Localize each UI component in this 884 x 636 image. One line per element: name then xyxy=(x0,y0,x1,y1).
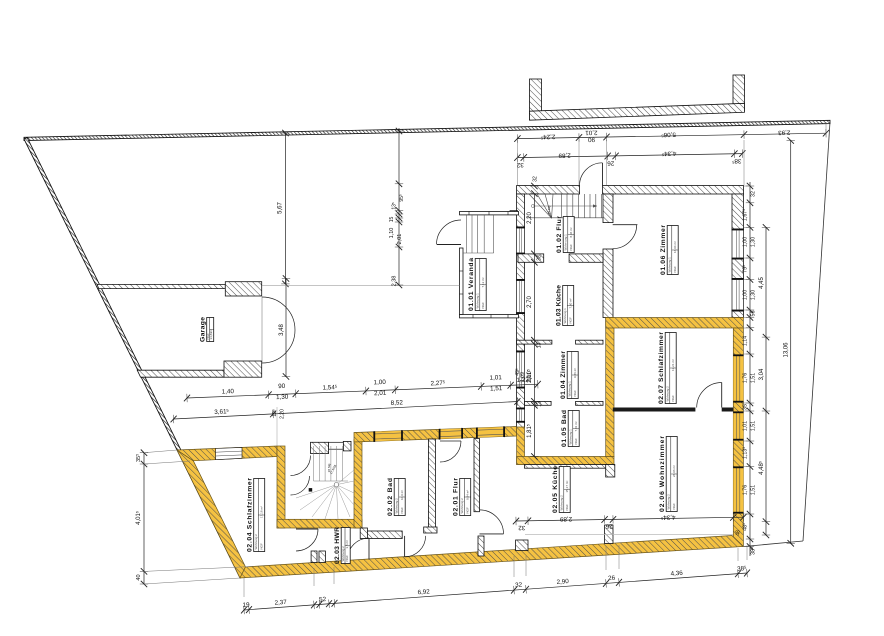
svg-text:26: 26 xyxy=(608,575,616,583)
svg-text:26,96 m²: 26,96 m² xyxy=(672,465,676,477)
svg-text:02.06 Wohnzimmer: 02.06 Wohnzimmer xyxy=(659,436,666,512)
svg-text:1,00: 1,00 xyxy=(743,237,749,247)
svg-text:1,10: 1,10 xyxy=(389,228,395,239)
svg-text:01.02 Flur: 01.02 Flur xyxy=(556,216,563,253)
svg-text:15: 15 xyxy=(389,217,395,223)
svg-text:5,67: 5,67 xyxy=(278,202,284,214)
svg-text:Wohnung 1: Wohnung 1 xyxy=(476,293,480,309)
svg-text:7,13 m²: 7,13 m² xyxy=(481,277,485,287)
svg-text:4,36: 4,36 xyxy=(670,570,683,578)
svg-text:NGF: NGF xyxy=(400,507,404,514)
svg-text:1,00: 1,00 xyxy=(743,290,749,300)
svg-text:NGF: NGF xyxy=(673,266,677,273)
svg-text:7,60 m²: 7,60 m² xyxy=(568,298,572,308)
svg-text:01.04 Zimmer: 01.04 Zimmer xyxy=(560,351,567,399)
svg-text:1,76: 1,76 xyxy=(743,485,749,495)
svg-text:17,18 m²: 17,18 m² xyxy=(259,506,263,518)
svg-text:8,36 m²: 8,36 m² xyxy=(569,227,573,237)
svg-text:1,30: 1,30 xyxy=(751,290,757,300)
svg-text:2,89: 2,89 xyxy=(559,515,572,522)
svg-text:32: 32 xyxy=(751,191,757,197)
svg-text:NGF: NGF xyxy=(259,543,263,550)
svg-text:3,615: 3,615 xyxy=(214,408,229,416)
svg-text:1,51: 1,51 xyxy=(751,421,757,431)
svg-text:1,545: 1,545 xyxy=(322,384,337,392)
svg-text:Wohnung 1: Wohnung 1 xyxy=(568,381,572,397)
svg-text:02.07 Schlafzimmer: 02.07 Schlafzimmer xyxy=(658,332,665,404)
svg-text:2,70: 2,70 xyxy=(527,296,533,308)
svg-text:3,5 m²: 3,5 m² xyxy=(345,540,349,549)
svg-text:3,04: 3,04 xyxy=(759,368,765,380)
svg-text:2,01: 2,01 xyxy=(397,234,403,245)
svg-text:3,48: 3,48 xyxy=(279,324,285,336)
svg-text:Wohnung 2: Wohnung 2 xyxy=(254,534,258,550)
svg-text:01.03 Küche: 01.03 Küche xyxy=(556,285,563,326)
svg-text:1,30: 1,30 xyxy=(751,237,757,247)
svg-text:02.04 Schlafzimmer: 02.04 Schlafzimmer xyxy=(247,478,254,552)
svg-text:NGF: NGF xyxy=(569,244,573,251)
svg-text:48: 48 xyxy=(736,530,742,536)
svg-text:26: 26 xyxy=(605,522,613,529)
svg-text:9,86 m²: 9,86 m² xyxy=(573,368,577,378)
svg-text:1,51: 1,51 xyxy=(490,385,503,392)
svg-text:6,92: 6,92 xyxy=(417,588,430,596)
svg-text:2,93: 2,93 xyxy=(778,129,791,136)
svg-text:26: 26 xyxy=(607,159,615,166)
svg-text:01.01 Veranda: 01.01 Veranda xyxy=(468,258,475,311)
svg-text:1,09: 1,09 xyxy=(520,372,526,382)
svg-text:02.01 Flur: 02.01 Flur xyxy=(453,478,460,516)
svg-text:13,21 m²: 13,21 m² xyxy=(671,359,675,371)
svg-text:32: 32 xyxy=(515,582,523,590)
svg-text:1,51: 1,51 xyxy=(751,373,757,383)
svg-text:Wohnung 2: Wohnung 2 xyxy=(667,494,671,510)
svg-text:13: 13 xyxy=(537,401,543,407)
svg-text:16,94 m²: 16,94 m² xyxy=(673,241,677,253)
svg-text:2,89: 2,89 xyxy=(558,151,571,158)
svg-text:56: 56 xyxy=(751,311,757,317)
svg-text:15,17 m²: 15,17 m² xyxy=(565,481,569,493)
svg-text:1,01: 1,01 xyxy=(743,421,749,431)
svg-text:35: 35 xyxy=(743,404,749,410)
svg-text:Wohnung 2: Wohnung 2 xyxy=(395,498,399,514)
svg-text:Wohnung 1: Wohnung 1 xyxy=(569,429,573,445)
svg-text:1,14: 1,14 xyxy=(743,336,749,346)
svg-text:52: 52 xyxy=(319,596,327,604)
svg-text:8,52: 8,52 xyxy=(391,399,404,407)
svg-text:NGF: NGF xyxy=(573,390,577,397)
svg-text:2,275: 2,275 xyxy=(430,379,445,387)
svg-text:38: 38 xyxy=(537,255,543,261)
svg-text:13: 13 xyxy=(537,343,543,349)
svg-text:1,51: 1,51 xyxy=(751,485,757,495)
svg-text:02.05 Küche: 02.05 Küche xyxy=(552,466,559,513)
svg-text:m²: m² xyxy=(209,329,213,333)
svg-text:2,01: 2,01 xyxy=(585,129,598,136)
svg-text:NGF: NGF xyxy=(465,507,469,514)
svg-text:NGF: NGF xyxy=(672,503,676,510)
svg-text:40: 40 xyxy=(136,574,142,580)
svg-text:2,20: 2,20 xyxy=(527,212,533,224)
svg-text:1,00: 1,00 xyxy=(373,379,386,386)
svg-text:1,01: 1,01 xyxy=(489,374,502,381)
svg-text:NGF: NGF xyxy=(565,504,569,511)
svg-text:Wohnung 1: Wohnung 1 xyxy=(668,257,672,273)
svg-text:7,01 m²: 7,01 m² xyxy=(574,421,578,431)
svg-text:Wohnung 2: Wohnung 2 xyxy=(666,386,670,402)
svg-text:1,76: 1,76 xyxy=(743,373,749,383)
svg-text:2,37: 2,37 xyxy=(274,599,287,607)
svg-text:2,90: 2,90 xyxy=(556,578,569,586)
svg-text:02.02 Bad: 02.02 Bad xyxy=(387,478,394,516)
svg-text:15 Stg: 15 Stg xyxy=(547,205,551,214)
svg-text:Wohnung 2: Wohnung 2 xyxy=(560,495,564,511)
svg-text:NGF: NGF xyxy=(345,555,349,562)
svg-text:01.06 Zimmer: 01.06 Zimmer xyxy=(660,225,667,275)
svg-text:13,06: 13,06 xyxy=(784,342,790,358)
svg-text:32: 32 xyxy=(518,524,526,531)
svg-text:10,9 m²: 10,9 m² xyxy=(400,490,404,500)
svg-text:NGF: NGF xyxy=(671,395,675,402)
svg-text:1,30: 1,30 xyxy=(276,394,289,401)
svg-text:90: 90 xyxy=(587,136,595,143)
svg-text:90: 90 xyxy=(278,383,286,390)
svg-text:32: 32 xyxy=(533,176,539,182)
svg-text:NGF: NGF xyxy=(481,302,485,309)
svg-text:2,20: 2,20 xyxy=(280,409,286,419)
svg-text:NGF: NGF xyxy=(574,438,578,445)
svg-text:1,40: 1,40 xyxy=(222,388,235,395)
svg-text:Wohnung 1: Wohnung 1 xyxy=(563,308,567,324)
svg-text:Wohnung 2: Wohnung 2 xyxy=(460,498,464,514)
svg-text:Wohn-ung 1: Wohn-ung 1 xyxy=(564,234,568,251)
svg-text:01.05 Bad: 01.05 Bad xyxy=(561,410,568,447)
svg-text:2,01: 2,01 xyxy=(374,390,387,397)
svg-text:2,38: 2,38 xyxy=(392,276,398,287)
svg-text:NGF: NGF xyxy=(568,317,572,324)
svg-text:4,45: 4,45 xyxy=(759,277,765,289)
svg-text:9,84 m²: 9,84 m² xyxy=(465,490,469,500)
svg-text:19: 19 xyxy=(242,602,250,610)
